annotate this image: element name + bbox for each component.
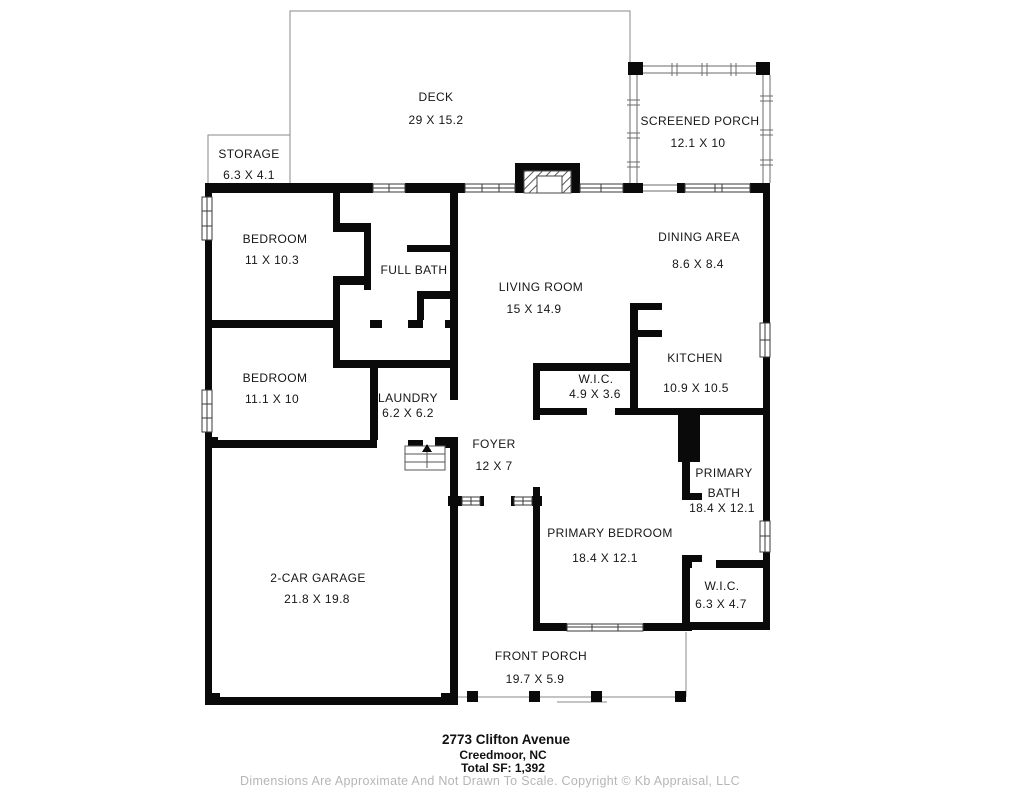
room-dims-bedroom-1: 11 X 10.3 [245,253,299,267]
room-dims-foyer: 12 X 7 [475,459,512,473]
room-name-primary-bath: PRIMARY BATH [683,463,765,503]
room-name-wic-hall: W.I.C. [578,372,613,386]
room-dims-storage: 6.3 X 4.1 [223,168,275,182]
total-sf: Total SF: 1,392 [461,761,545,775]
room-name-screened-porch: SCREENED PORCH [641,114,760,128]
room-name-living-room: LIVING ROOM [499,280,583,294]
address-line2: Creedmoor, NC [459,748,546,762]
room-dims-dining-area: 8.6 X 8.4 [672,257,724,271]
room-name-garage: 2-CAR GARAGE [270,571,366,585]
room-name-front-porch: FRONT PORCH [495,649,587,663]
room-name-dining-area: DINING AREA [658,230,740,244]
window-symbol [567,624,643,631]
room-name-deck: DECK [419,90,454,104]
window-symbol [465,184,515,192]
address-line1: 2773 Clifton Avenue [442,732,570,747]
room-name-primary-bedroom: PRIMARY BEDROOM [547,526,673,540]
disclaimer: Dimensions Are Approximate And Not Drawn… [240,774,740,788]
floor-plan-page: DECK 29 X 15.2 STORAGE 6.3 X 4.1 SCREENE… [0,0,1024,791]
room-name-laundry: LAUNDRY [378,391,438,405]
window-symbol [373,184,405,192]
room-dims-front-porch: 19.7 X 5.9 [506,672,565,686]
room-dims-deck: 29 X 15.2 [409,113,464,127]
room-name-bedroom-2: BEDROOM [243,371,308,385]
window-symbol [760,521,770,552]
room-dims-wic-primary: 6.3 X 4.7 [695,597,747,611]
room-dims-screened-porch: 12.1 X 10 [671,136,726,150]
window-symbol [580,184,623,192]
front-porch-outline [455,632,686,702]
window-symbol [685,184,750,192]
room-name-bedroom-1: BEDROOM [243,232,308,246]
room-name-storage: STORAGE [218,147,279,161]
room-dims-primary-bedroom: 18.4 X 12.1 [572,551,638,565]
fireplace-icon [515,163,580,193]
room-dims-kitchen: 10.9 X 10.5 [663,381,729,395]
room-dims-laundry: 6.2 X 6.2 [382,406,434,420]
window-symbol [462,497,480,505]
room-name-wic-primary: W.I.C. [704,579,739,593]
window-symbol [514,497,532,505]
room-dims-garage: 21.8 X 19.8 [284,592,350,606]
window-symbol [202,197,212,240]
window-symbol [202,390,212,432]
room-name-kitchen: KITCHEN [667,351,722,365]
room-name-full-bath: FULL BATH [381,263,448,277]
room-dims-wic-hall: 4.9 X 3.6 [569,387,621,401]
room-name-foyer: FOYER [472,437,515,451]
window-symbol [760,323,770,357]
room-dims-primary-bath: 18.4 X 12.1 [689,501,755,515]
room-dims-bedroom-2: 11.1 X 10 [245,392,299,406]
room-dims-living-room: 15 X 14.9 [507,302,562,316]
stairs-up-icon [405,444,445,470]
